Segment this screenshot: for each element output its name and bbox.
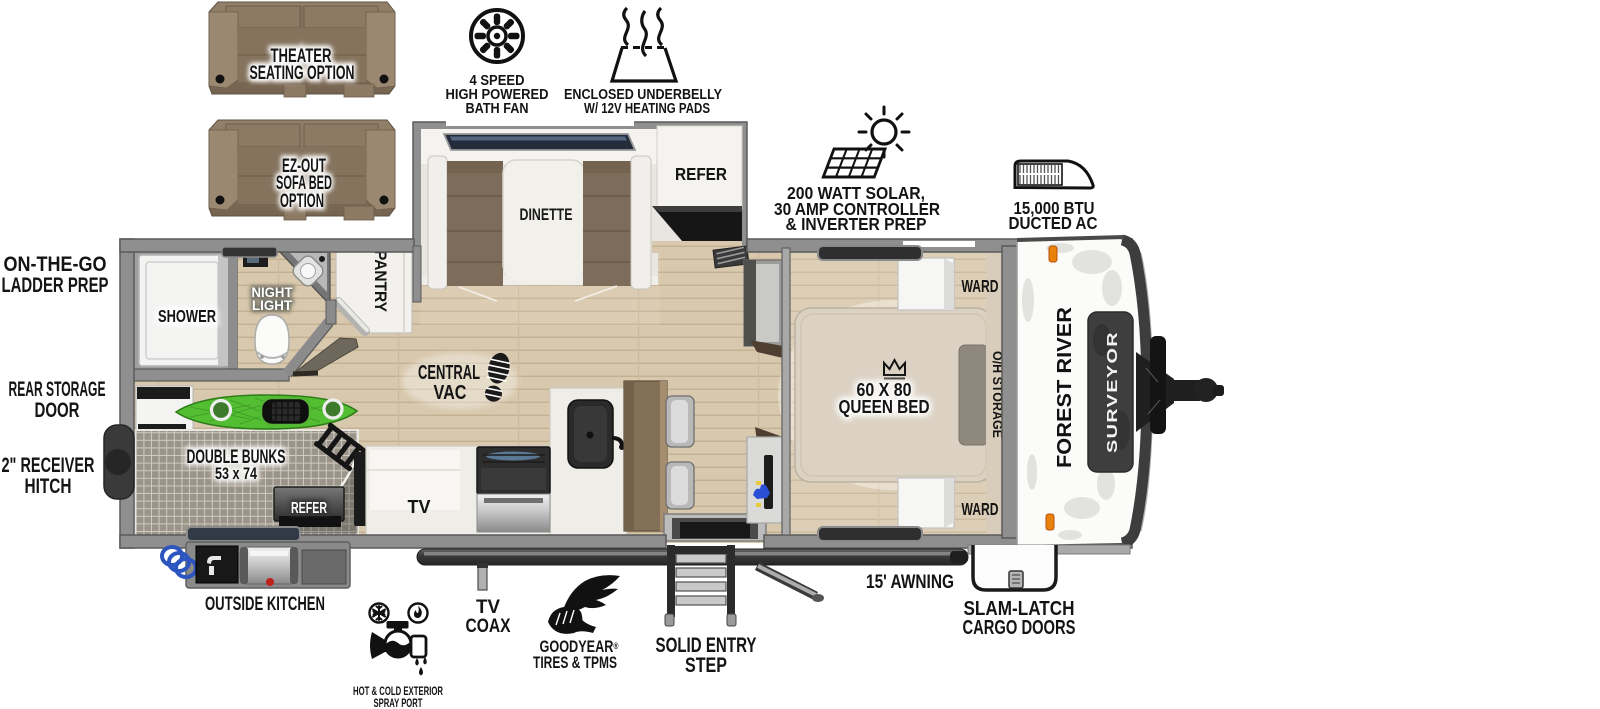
svg-text:LADDER PREP: LADDER PREP: [2, 274, 109, 297]
svg-text:REFER: REFER: [675, 164, 727, 184]
svg-text:TV: TV: [408, 497, 431, 517]
svg-text:OPTION: OPTION: [280, 191, 324, 212]
svg-text:2" RECEIVER: 2" RECEIVER: [2, 454, 95, 477]
svg-text:WARD: WARD: [962, 499, 999, 519]
svg-text:CARGO DOORS: CARGO DOORS: [963, 616, 1076, 639]
svg-text:DOOR: DOOR: [35, 399, 80, 422]
svg-text:REFER: REFER: [291, 500, 327, 517]
svg-text:STEP: STEP: [685, 654, 727, 677]
svg-text:WARD: WARD: [962, 276, 999, 296]
svg-text:CENTRAL: CENTRAL: [418, 362, 480, 384]
svg-text:BATH FAN: BATH FAN: [466, 101, 529, 117]
svg-text:DUCTED AC: DUCTED AC: [1009, 213, 1098, 233]
svg-text:SURVEYOR: SURVEYOR: [1105, 331, 1121, 453]
svg-text:DINETTE: DINETTE: [520, 205, 573, 224]
svg-text:SHOWER: SHOWER: [158, 306, 216, 326]
svg-text:LIGHT: LIGHT: [252, 298, 293, 313]
svg-text:HITCH: HITCH: [25, 475, 72, 498]
svg-text:QUEEN BED: QUEEN BED: [839, 397, 930, 417]
svg-text:PANTRY: PANTRY: [371, 250, 390, 313]
svg-text:COAX: COAX: [466, 615, 511, 637]
svg-text:SEATING OPTION: SEATING OPTION: [250, 63, 355, 84]
svg-text:15' AWNING: 15' AWNING: [866, 572, 954, 593]
svg-text:W/ 12V HEATING PADS: W/ 12V HEATING PADS: [584, 101, 710, 117]
svg-text:ON-THE-GO: ON-THE-GO: [4, 253, 107, 276]
svg-text:53 x 74: 53 x 74: [215, 464, 257, 483]
svg-text:VAC: VAC: [434, 382, 467, 404]
svg-text:& INVERTER PREP: & INVERTER PREP: [786, 214, 927, 234]
svg-text:REAR STORAGE: REAR STORAGE: [9, 378, 106, 401]
svg-text:FOREST RIVER: FOREST RIVER: [1054, 306, 1076, 468]
svg-text:TIRES & TPMS: TIRES & TPMS: [533, 654, 617, 672]
svg-text:OUTSIDE KITCHEN: OUTSIDE KITCHEN: [205, 594, 325, 615]
svg-text:SPRAY PORT: SPRAY PORT: [374, 696, 423, 709]
